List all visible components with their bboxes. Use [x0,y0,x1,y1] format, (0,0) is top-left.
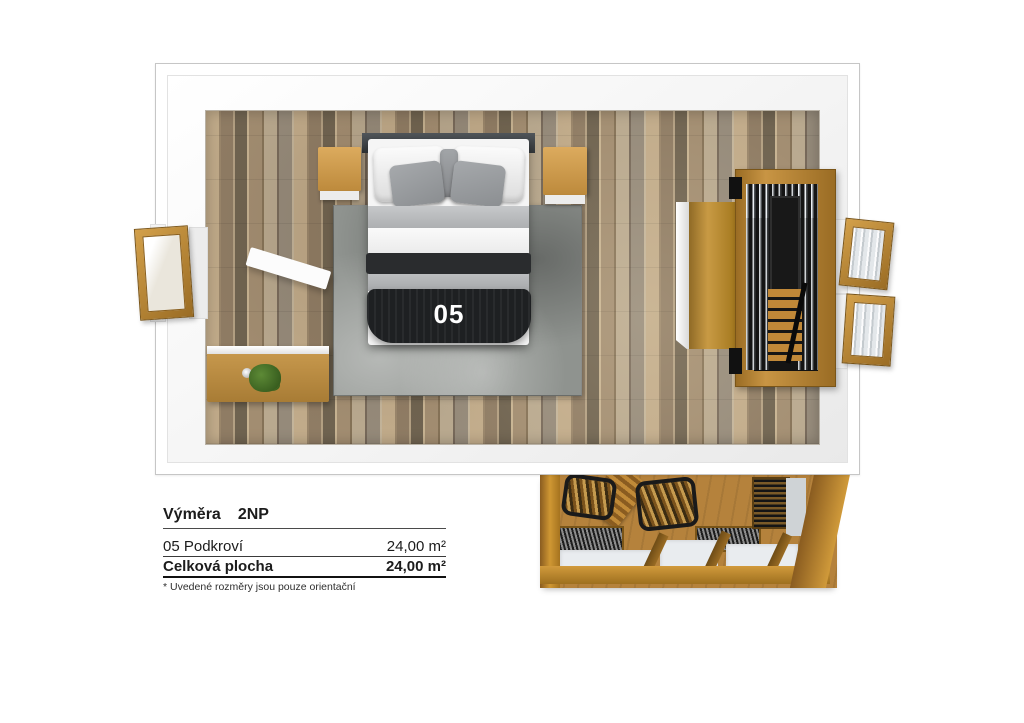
chair-icon [635,476,700,532]
legend-title-label: Výměra [163,506,221,524]
nightstand-shelf [545,195,585,204]
nightstand-left [318,147,361,191]
plant-icon [249,364,281,392]
window-glass [850,302,887,358]
bed-foot-blanket: 05 [367,289,531,343]
pillow-accent [389,160,446,208]
legend-total-area: 24,00 m² [386,559,446,575]
legend-total-name: Celková plocha [163,559,273,575]
slat-panel [752,477,790,529]
wardrobe-edge [676,202,689,349]
blanket-dark [366,253,531,274]
legend-row-total: Celková plocha 24,00 m² [163,559,446,578]
legend-note: * Uvedené rozměry jsou pouze orientační [163,581,446,593]
legend-title-floor: 2NP [238,506,269,524]
pillow-accent [450,160,507,208]
legend-title: Výměra 2NP [163,506,446,529]
railing-rods [746,184,770,370]
window-glass [847,226,885,281]
dresser [207,346,329,402]
wardrobe [676,202,743,349]
railing-bracket [729,348,742,374]
window-left [134,225,194,321]
nightstand-right [543,147,587,195]
legend-row: 05 Podkroví 24,00 m² [163,539,446,557]
lower-floor-structure [540,474,837,588]
room-number-label: 05 [434,299,465,330]
bed-sheet [368,228,529,253]
wood-beam [540,566,830,584]
nightstand-shelf [320,191,359,200]
floorplan-page: 05 [0,0,1024,723]
dresser-top [207,346,329,354]
stairwell-opening [746,184,818,370]
window-glass [142,234,185,312]
area-legend: Výměra 2NP 05 Podkroví 24,00 m² Celková … [163,506,446,593]
window-right-bottom [842,293,896,366]
window-right-top [839,218,895,291]
staircase [735,169,836,387]
chair-icon [560,473,617,522]
legend-room-area: 24,00 m² [387,539,446,555]
blanket-fold [368,206,529,228]
grille-panel [558,526,624,552]
legend-room-name: 05 Podkroví [163,539,243,555]
railing-bracket [729,177,742,199]
stairwell-wall [770,196,800,300]
